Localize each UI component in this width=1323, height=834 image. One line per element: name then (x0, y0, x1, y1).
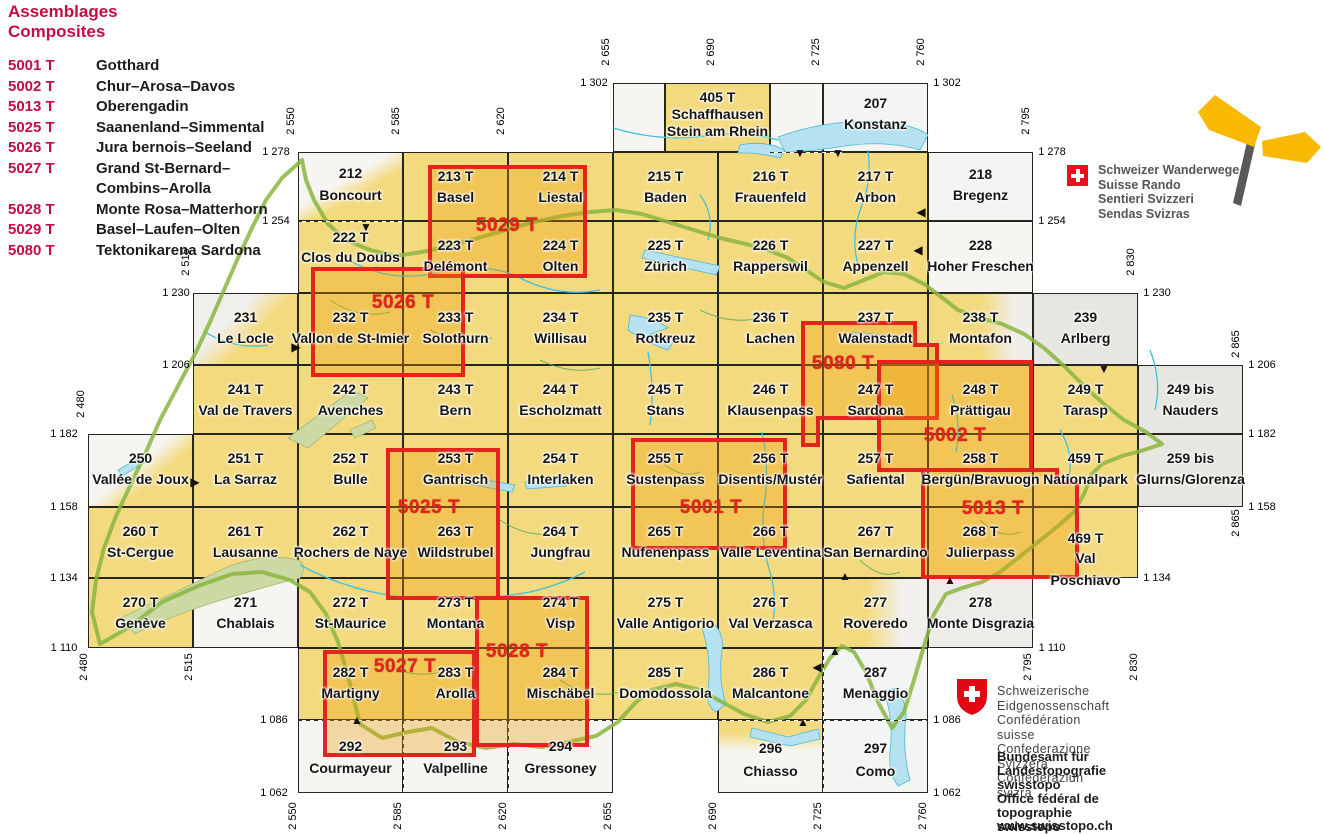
map-sheet-label: Lausanne (213, 544, 278, 560)
map-sheet-label: Sustenpass (626, 471, 705, 487)
composite-label-5028T: 5028 T (486, 641, 548, 663)
map-sheet-label: Delémont (424, 258, 488, 274)
legend-title-fr: Assemblages (8, 2, 293, 22)
composite-label-5025T: 5025 T (398, 497, 460, 519)
legend-item-name: Jura bernois–Seeland (96, 138, 252, 159)
map-sheet-label: Genève (115, 615, 166, 631)
grid-coordinate-label: 1 134 (1143, 572, 1171, 584)
map-sheet-label: Valle Leventina (720, 544, 821, 560)
map-sheet-label: Le Locle (217, 330, 274, 346)
legend-item: 5080 TTektonikarena Sardona (8, 241, 293, 262)
map-sheet-label: Glurns/Glorenza (1136, 471, 1245, 487)
map-sheet-label: 234 T (543, 309, 579, 325)
map-sheet-label: 405 T (700, 89, 736, 105)
map-sheet-label: 218 (969, 166, 992, 182)
map-sheet-label: 257 T (858, 450, 894, 466)
adjoining-sheet-marker-right: ▶ (291, 341, 300, 353)
grid-coordinate-label: 2 655 (600, 38, 612, 66)
map-sheet-label: 271 (234, 594, 257, 610)
legend-item-name: Grand St-Bernard–Combins–Arolla (96, 159, 293, 200)
map-sheet-label: Bern (440, 402, 472, 418)
map-sheet-label: 213 T (438, 168, 474, 184)
map-sheet-label: Escholzmatt (519, 402, 601, 418)
map-sheet-label: 252 T (333, 450, 369, 466)
map-sheet-label: 242 T (333, 381, 369, 397)
legend-item-code: 5002 T (8, 77, 96, 98)
map-sheet-label: Rochers de Naye (294, 544, 408, 560)
grid-coordinate-label: 1 182 (1248, 428, 1276, 440)
map-sheet-label: 236 T (753, 309, 789, 325)
grid-coordinate-label: 2 865 (1230, 330, 1242, 358)
map-sheet-label: 207 (864, 95, 887, 111)
map-sheet-label: Gantrisch (423, 471, 488, 487)
map-sheet-label: 227 T (858, 237, 894, 253)
map-sheet-label: 274 T (543, 594, 579, 610)
map-sheet-label: 238 T (963, 309, 999, 325)
legend-title-en: Composites (8, 22, 293, 42)
signpost-arrow-left (1198, 95, 1261, 147)
map-sheet-label: Val Verzasca (728, 615, 812, 631)
map-sheet-label: Chablais (216, 615, 274, 631)
adjoining-sheet-marker-right: ▶ (190, 476, 199, 488)
grid-coordinate-label: 2 620 (497, 802, 509, 830)
grid-coordinate-label: 2 690 (707, 802, 719, 830)
grid-coordinate-label: 1 182 (50, 428, 78, 440)
adjoining-sheet-marker-up: ▲ (829, 645, 841, 657)
map-sheet-label: 255 T (648, 450, 684, 466)
composite-label-5080T: 5080 T (812, 353, 874, 375)
map-sheet-label: 216 T (753, 168, 789, 184)
map-sheet-label: Rapperswil (733, 258, 808, 274)
map-sheet-label: Baden (644, 189, 687, 205)
map-sheet-label: Martigny (321, 685, 379, 701)
map-sheet-label: Stans (646, 402, 684, 418)
grid-coordinate-label: 1 230 (162, 287, 190, 299)
map-sheet-label: Nauders (1162, 402, 1218, 418)
grid-coordinate-label: 1 086 (260, 714, 288, 726)
map-sheet-label: Gressoney (524, 760, 596, 776)
grid-coordinate-label: 2 515 (183, 653, 195, 681)
map-sheet-label: 276 T (753, 594, 789, 610)
map-sheet-label: 223 T (438, 237, 474, 253)
map-sheet-label: Lachen (746, 330, 795, 346)
legend-item-code: 5080 T (8, 241, 96, 262)
composite-label-5001T: 5001 T (680, 497, 742, 519)
grid-coordinate-label: 2 760 (917, 802, 929, 830)
map-sheet-label: Julierpass (946, 544, 1015, 560)
map-sheet-label: Nationalpark (1043, 471, 1128, 487)
map-sheet-label: 272 T (333, 594, 369, 610)
adjoining-sheet-marker-down: ▼ (832, 147, 844, 159)
map-sheet-label: 264 T (543, 523, 579, 539)
map-sheet-label: 249 bis (1167, 381, 1214, 397)
map-sheet-label: 265 T (648, 523, 684, 539)
map-sheet-label: 261 T (228, 523, 264, 539)
map-sheet-label: 266 T (753, 523, 789, 539)
map-sheet-label: 287 (864, 664, 887, 680)
map-sheet-label: Vallon de St-Imier (292, 330, 409, 346)
map-sheet-label: Valle Antigorio (617, 615, 715, 631)
map-sheet-label: 277 (864, 594, 887, 610)
map-sheet-label: 294 (549, 738, 572, 754)
legend-item-name: Gotthard (96, 56, 159, 77)
map-sheet-label: Solothurn (422, 330, 488, 346)
map-sheet-label: Jungfrau (531, 544, 591, 560)
map-sheet-label: 228 (969, 237, 992, 253)
map-sheet-label: Wildstrubel (417, 544, 493, 560)
map-sheet-label: Arlberg (1061, 330, 1111, 346)
composite-label-5027T: 5027 T (374, 656, 436, 678)
map-sheet-label: 244 T (543, 381, 579, 397)
legend-item-name: Chur–Arosa–Davos (96, 77, 235, 98)
grid-coordinate-label: 1 110 (51, 642, 78, 654)
legend-item: 5027 TGrand St-Bernard–Combins–Arolla (8, 159, 293, 200)
grid-coordinate-label: 2 795 (1020, 107, 1032, 135)
map-sheet-label: Malcantone (732, 685, 809, 701)
federal-office-block: Schweizerische EidgenossenschaftConfédér… (956, 678, 988, 721)
grid-coordinate-label: 1 302 (580, 77, 608, 89)
map-sheet-label: St-Cergue (107, 544, 174, 560)
composite-label-5026T: 5026 T (372, 292, 434, 314)
grid-coordinate-label: 2 830 (1125, 248, 1137, 276)
map-sheet-label: 250 (129, 450, 152, 466)
grid-coordinate-label: 1 158 (1248, 501, 1276, 513)
hiking-signpost-icon (1193, 86, 1323, 211)
map-sheet-label: 241 T (228, 381, 264, 397)
map-sheet-label: 284 T (543, 664, 579, 680)
grid-coordinate-label: 1 134 (50, 572, 78, 584)
grid-coordinate-label: 2 725 (810, 38, 822, 66)
map-sheet-label: 251 T (228, 450, 264, 466)
map-sheet-label: 275 T (648, 594, 684, 610)
map-sheet-label: Willisau (534, 330, 587, 346)
grid-coordinate-label: 2 480 (78, 653, 90, 681)
map-sheet-label: 292 (339, 738, 362, 754)
map-sheet-label: 253 T (438, 450, 474, 466)
legend-item-code: 5025 T (8, 118, 96, 139)
map-sheet-label: 212 (339, 165, 362, 181)
map-sheet-label: Arbon (855, 189, 896, 205)
grid-coordinate-label: 1 302 (933, 77, 961, 89)
grid-coordinate-label: 1 062 (933, 787, 961, 799)
map-sheet-label: Monte Disgrazia (927, 615, 1034, 631)
map-sheet-label: 246 T (753, 381, 789, 397)
map-sheet-label: La Sarraz (214, 471, 277, 487)
map-sheet-label: 248 T (963, 381, 999, 397)
map-sheet-label: Bulle (333, 471, 367, 487)
map-sheet-label: 226 T (753, 237, 789, 253)
map-sheet-label: 249 T (1068, 381, 1104, 397)
map-sheet-label: Prättigau (950, 402, 1011, 418)
text-line: Schweizerische Eidgenossenschaft (997, 684, 1109, 713)
map-sheet-label: Bergün/Bravuogn (921, 471, 1039, 487)
map-sheet-label: 283 T (438, 664, 474, 680)
map-sheet-label: 256 T (753, 450, 789, 466)
map-sheet-label: Olten (543, 258, 579, 274)
legend-item-code: 5026 T (8, 138, 96, 159)
map-sheet-label: 217 T (858, 168, 894, 184)
legend-item-code: 5013 T (8, 97, 96, 118)
map-sheet-label: Frauenfeld (735, 189, 807, 205)
legend: Assemblages Composites 5001 TGotthard500… (8, 2, 293, 261)
legend-item-name: Basel–Laufen–Olten (96, 220, 240, 241)
map-sheet-label: Interlaken (527, 471, 593, 487)
grid-coordinate-label: 1 206 (1248, 359, 1276, 371)
map-sheet-label: Montana (427, 615, 485, 631)
adjoining-sheet-marker-down: ▼ (1098, 363, 1110, 375)
composite-label-5013T: 5013 T (962, 498, 1024, 520)
map-sheet-label: Roveredo (843, 615, 908, 631)
map-sheet-label: 293 (444, 738, 467, 754)
adjoining-sheet-marker-up: ▲ (839, 570, 851, 582)
map-sheet-label: Schaffhausen (672, 106, 764, 122)
map-sheet-label: Courmayeur (309, 760, 391, 776)
map-sheet-label: 285 T (648, 664, 684, 680)
map-sheet-label: Hoher Freschen (927, 258, 1034, 274)
legend-item-name: Oberengadin (96, 97, 189, 118)
text-line: Confédération suisse (997, 713, 1109, 742)
map-sheet-label: Tarasp (1063, 402, 1108, 418)
grid-coordinate-label: 2 585 (392, 802, 404, 830)
adjoining-sheet-marker-down: ▼ (794, 147, 806, 159)
map-sheet-label: Liestal (538, 189, 582, 205)
map-sheet-label: 268 T (963, 523, 999, 539)
grid-coordinate-label: 1 110 (1039, 642, 1066, 654)
map-sheet-label: Como (856, 763, 896, 779)
adjoining-sheet-marker-left: ◀ (913, 244, 922, 256)
grid-coordinate-label: 1 230 (1143, 287, 1171, 299)
map-sheet-label: Vallée de Joux (92, 471, 189, 487)
map-sheet-label: 245 T (648, 381, 684, 397)
adjoining-sheet-marker-up: ▲ (351, 714, 363, 726)
grid-coordinate-label: 1 278 (1038, 146, 1066, 158)
map-sheet-label: San Bernardino (823, 544, 927, 560)
grid-coordinate-label: 2 830 (1128, 653, 1140, 681)
signpost-arrow-right (1262, 132, 1321, 163)
grid-coordinate-label: 2 760 (915, 38, 927, 66)
map-sheet-label: Zürich (644, 258, 687, 274)
adjoining-sheet-marker-down: ▼ (360, 221, 372, 233)
map-sheet-label: St-Maurice (315, 615, 387, 631)
map-sheet-label: 270 T (123, 594, 159, 610)
map-sheet-label: Poschiavo (1050, 572, 1120, 588)
legend-item: 5028 TMonte Rosa–Matterhorn (8, 200, 293, 221)
adjoining-sheet-marker-up: ▲ (797, 716, 809, 728)
swiss-coat-of-arms-icon (956, 678, 988, 716)
composite-label-5002T: 5002 T (924, 425, 986, 447)
legend-item: 5025 TSaanenland–Simmental (8, 118, 293, 139)
map-sheet-label: Nufenenpass (622, 544, 710, 560)
map-sheet-label: 233 T (438, 309, 474, 325)
map-sheet-label: 286 T (753, 664, 789, 680)
map-sheet-label: Visp (546, 615, 575, 631)
map-sheet-label: Rotkreuz (636, 330, 696, 346)
map-sheet-label: 267 T (858, 523, 894, 539)
map-sheet-label: Klausenpass (727, 402, 813, 418)
map-sheet-label: Safiental (846, 471, 904, 487)
map-sheet-label: 231 (234, 309, 257, 325)
map-sheet-label: 254 T (543, 450, 579, 466)
map-sheet-label: Appenzell (842, 258, 908, 274)
map-sheet-label: Sardona (847, 402, 903, 418)
grid-coordinate-label: 2 585 (390, 107, 402, 135)
map-sheet-label: Stein am Rhein (667, 123, 768, 139)
map-sheet-label: Konstanz (844, 116, 907, 132)
grid-coordinate-label: 1 206 (162, 359, 190, 371)
map-sheet-label: 278 (969, 594, 992, 610)
map-index-page: { "legend": { "title_line1": "Assemblage… (0, 0, 1323, 834)
adjoining-sheet-marker-up: ▲ (944, 574, 956, 586)
map-sheet-label: 225 T (648, 237, 684, 253)
map-sheet-label: Arolla (436, 685, 476, 701)
map-sheet-label: 469 T (1068, 530, 1104, 546)
swisstopo-url[interactable]: www.swisstopo.ch (997, 818, 1113, 833)
map-sheet-label: 224 T (543, 237, 579, 253)
grid-coordinate-label: 2 655 (602, 802, 614, 830)
map-sheet-label: Domodossola (619, 685, 712, 701)
adjoining-sheet-marker-left: ◀ (916, 206, 925, 218)
map-sheet-label: 237 T (858, 309, 894, 325)
grid-coordinate-label: 1 158 (50, 501, 78, 513)
map-sheet-label: Avenches (318, 402, 384, 418)
legend-item: 5002 TChur–Arosa–Davos (8, 77, 293, 98)
map-sheet-label: Basel (437, 189, 474, 205)
map-sheet-label: 214 T (543, 168, 579, 184)
map-sheet-label: Valpelline (423, 760, 488, 776)
legend-item: 5026 TJura bernois–Seeland (8, 138, 293, 159)
map-sheet-label: 459 T (1068, 450, 1104, 466)
swiss-flag-icon (1067, 165, 1088, 186)
map-sheet-label: Menaggio (843, 685, 908, 701)
map-sheet-label: 282 T (333, 664, 369, 680)
map-sheet-label: 215 T (648, 168, 684, 184)
legend-items: 5001 TGotthard5002 TChur–Arosa–Davos5013… (8, 56, 293, 261)
legend-item-code: 5029 T (8, 220, 96, 241)
legend-item: 5013 TOberengadin (8, 97, 293, 118)
map-sheet-label: 273 T (438, 594, 474, 610)
map-sheet-label: Disentis/Mustér (718, 471, 822, 487)
adjoining-sheet-marker-left: ◀ (812, 661, 821, 673)
legend-item: 5029 TBasel–Laufen–Olten (8, 220, 293, 241)
grid-coordinate-label: 2 690 (705, 38, 717, 66)
map-sheet-label: Chiasso (743, 763, 797, 779)
map-sheet-label: 297 (864, 740, 887, 756)
legend-item: 5001 TGotthard (8, 56, 293, 77)
map-sheet-label: Montafon (949, 330, 1012, 346)
map-sheet-label: 263 T (438, 523, 474, 539)
map-sheet-label: Clos du Doubs (301, 249, 400, 265)
map-sheet-label: 235 T (648, 309, 684, 325)
grid-coordinate-label: 2 725 (812, 802, 824, 830)
map-sheet-label: Bregenz (953, 187, 1008, 203)
legend-item-name: Saanenland–Simmental (96, 118, 264, 139)
map-sheet-label: Mischäbel (527, 685, 595, 701)
legend-item-code: 5001 T (8, 56, 96, 77)
map-sheet-label: 239 (1074, 309, 1097, 325)
map-sheet-label: 296 (759, 740, 782, 756)
map-sheet-label: 262 T (333, 523, 369, 539)
grid-coordinate-label: 1 062 (260, 787, 288, 799)
grid-coordinate-label: 2 865 (1230, 509, 1242, 537)
grid-coordinate-label: 2 550 (287, 802, 299, 830)
map-sheet-label: Walenstadt (838, 330, 912, 346)
flag-cross (1071, 174, 1084, 178)
text-line: Bundesamt für Landestopografie swisstopo (997, 750, 1106, 792)
map-sheet-label: 258 T (963, 450, 999, 466)
map-sheet-label: Val de Travers (198, 402, 292, 418)
grid-coordinate-label: 2 480 (75, 390, 87, 418)
map-sheet-label: Val (1075, 550, 1095, 566)
grid-coordinate-label: 2 795 (1022, 653, 1034, 681)
map-sheet-label: 247 T (858, 381, 894, 397)
map-sheet-label: 243 T (438, 381, 474, 397)
map-sheet-label: 232 T (333, 309, 369, 325)
legend-item-name: Tektonikarena Sardona (96, 241, 261, 262)
map-sheet-label: Boncourt (319, 187, 381, 203)
grid-coordinate-label: 1 254 (1038, 215, 1066, 227)
legend-item-code: 5028 T (8, 200, 96, 221)
map-sheet-label: 260 T (123, 523, 159, 539)
composite-label-5029T: 5029 T (476, 215, 538, 237)
grid-coordinate-label: 2 620 (495, 107, 507, 135)
map-sheet-label: 259 bis (1167, 450, 1214, 466)
legend-item-code: 5027 T (8, 159, 96, 180)
legend-item-name: Monte Rosa–Matterhorn (96, 200, 268, 221)
